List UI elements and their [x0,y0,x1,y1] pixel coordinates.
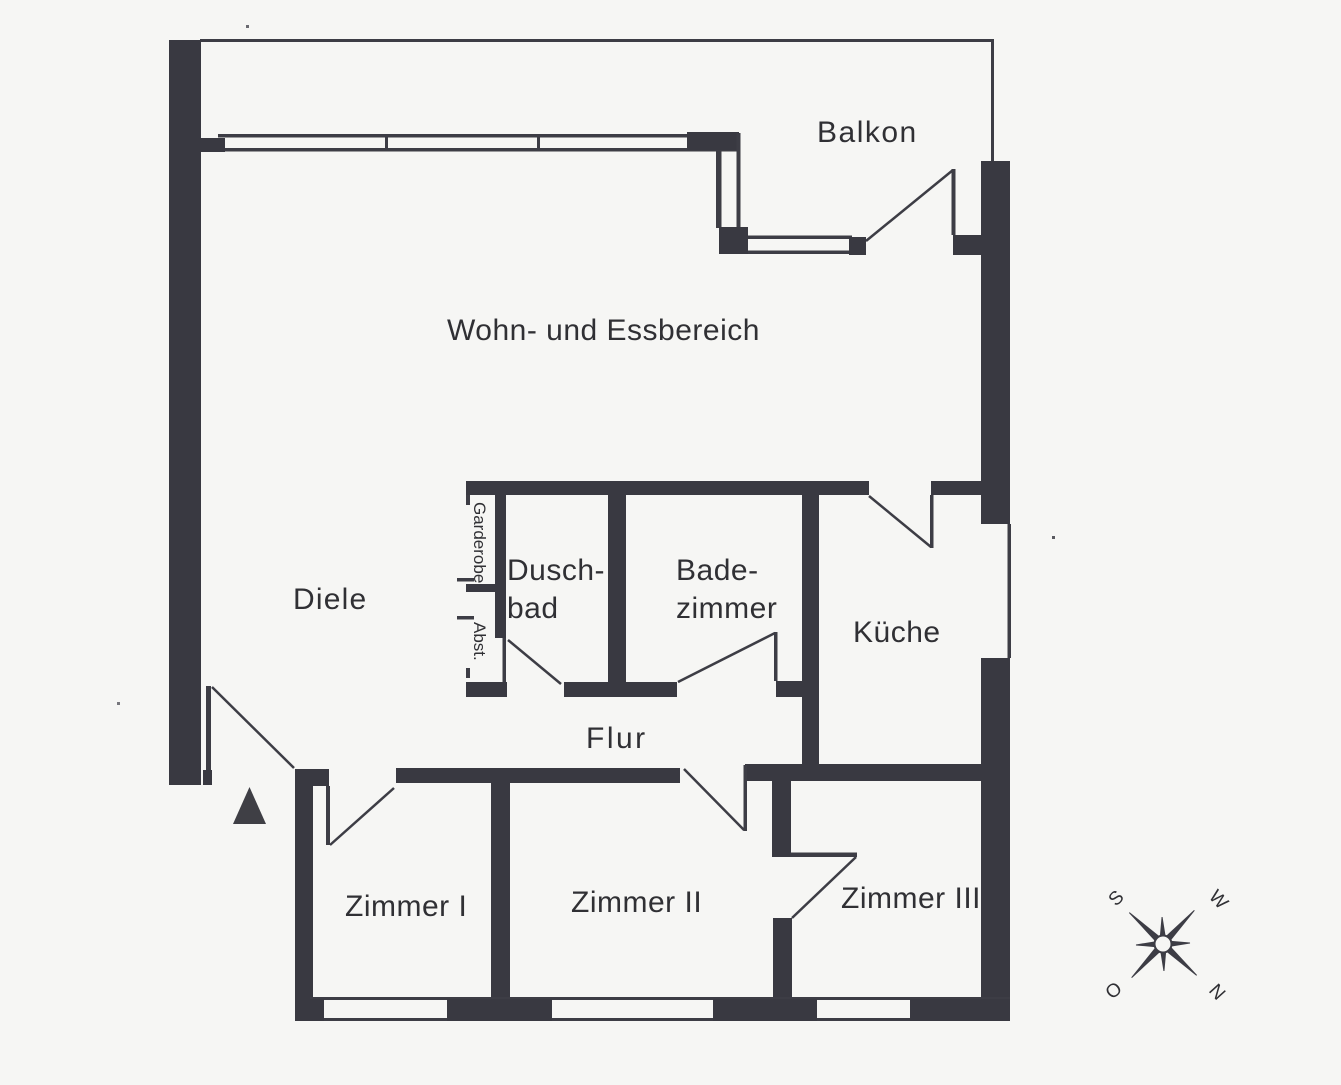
svg-text:Flur: Flur [586,722,648,755]
svg-text:Bade-: Bade- [676,554,759,587]
svg-text:Küche: Küche [853,616,941,649]
svg-text:Abst.: Abst. [470,622,489,661]
svg-text:Garderobe: Garderobe [470,502,489,583]
svg-text:Zimmer III: Zimmer III [841,882,981,915]
svg-text:Dusch-: Dusch- [507,554,605,587]
svg-text:zimmer: zimmer [676,592,777,625]
svg-text:Balkon: Balkon [817,116,918,149]
svg-text:Zimmer II: Zimmer II [571,886,702,919]
svg-text:Wohn- und Essbereich: Wohn- und Essbereich [447,314,760,347]
svg-text:Diele: Diele [293,583,367,616]
svg-text:bad: bad [507,592,559,625]
svg-text:Zimmer I: Zimmer I [345,890,467,923]
